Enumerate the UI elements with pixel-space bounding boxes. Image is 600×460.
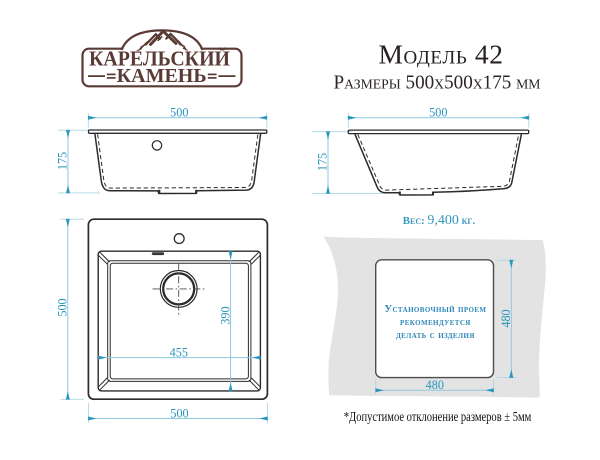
svg-text:500: 500 [170, 406, 188, 420]
svg-text:500: 500 [429, 106, 447, 120]
svg-text:455: 455 [170, 346, 188, 360]
svg-text:Модель 42: Модель 42 [378, 39, 503, 70]
svg-text:Вес: 9,400 кг.: Вес: 9,400 кг. [403, 213, 476, 228]
svg-text:500: 500 [170, 106, 188, 120]
svg-text:390: 390 [218, 306, 232, 324]
svg-text:480: 480 [426, 378, 444, 392]
svg-text:*Допустимое отклонение размеро: *Допустимое отклонение размеров ± 5мм [344, 409, 532, 424]
svg-text:Установочный проем: Установочный проем [384, 304, 486, 315]
svg-text:делать с изделия: делать с изделия [396, 330, 475, 341]
svg-text:Размеры 500х500х175 мм: Размеры 500х500х175 мм [334, 73, 542, 94]
svg-text:КАМЕНЬ: КАМЕНЬ [117, 65, 207, 87]
svg-text:500: 500 [56, 298, 70, 316]
svg-text:175: 175 [316, 153, 330, 171]
svg-text:175: 175 [56, 152, 70, 170]
svg-text:480: 480 [499, 309, 513, 327]
svg-text:рекомендуется: рекомендуется [400, 317, 471, 328]
